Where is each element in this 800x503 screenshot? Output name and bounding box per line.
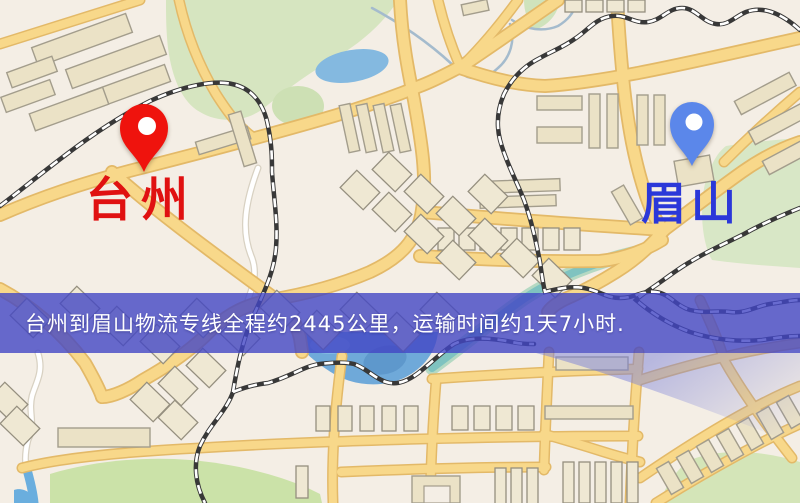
map-image: 台州 眉山	[0, 0, 800, 503]
origin-label: 台州	[86, 173, 196, 228]
route-info-banner: 台州到眉山物流专线全程约2445公里，运输时间约1天7小时.	[0, 293, 800, 353]
map-screenshot: 台州 眉山 台州到眉山物流专线全程约2445公里，运输时间约1天7小时.	[0, 0, 800, 503]
route-info-text: 台州到眉山物流专线全程约2445公里，运输时间约1天7小时.	[25, 308, 625, 338]
destination-label: 眉山	[641, 177, 741, 230]
